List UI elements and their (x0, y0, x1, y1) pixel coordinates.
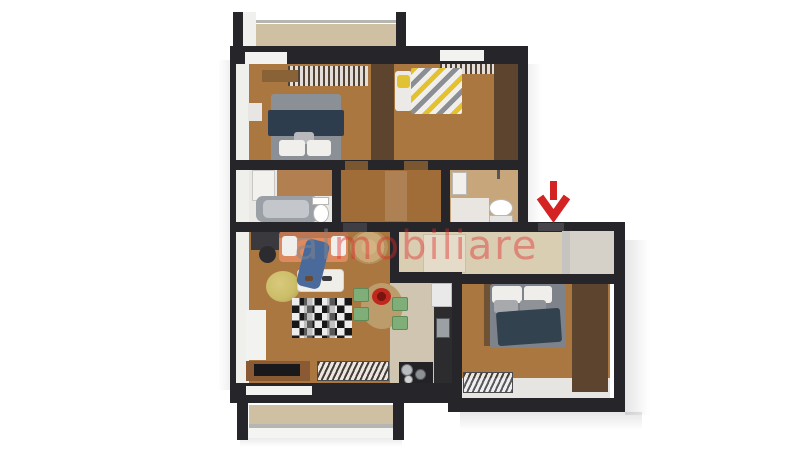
desk-chair (259, 246, 276, 263)
wall (230, 160, 528, 170)
wall (452, 274, 614, 284)
entrance-arrow-icon (534, 178, 570, 224)
balcony-bottom-outer (240, 428, 400, 438)
watermark-part-2: mobiliare (334, 223, 539, 269)
bedroom-3-blanket (496, 308, 562, 346)
divider-wardrobe (371, 50, 394, 160)
dining-chair (353, 307, 369, 321)
door-opening (345, 161, 368, 170)
balcony-top-railing (246, 20, 398, 23)
bedroom-2-bed-pillow-yellow (397, 75, 410, 88)
pot (415, 369, 426, 380)
slatted-shelf (246, 310, 266, 360)
dining-chair (353, 288, 369, 302)
door-opening (404, 161, 428, 170)
bedroom-3-radiator (463, 372, 513, 393)
window (440, 50, 484, 61)
living-room-radiator (317, 361, 389, 381)
shadow (218, 60, 230, 390)
wall (448, 398, 625, 412)
bedroom-3-wardrobe (572, 284, 608, 392)
balcony-bottom-floor (249, 405, 396, 424)
balcony-top-side-wall (243, 12, 256, 47)
checkered-rug (292, 298, 352, 338)
bathroom-2-sink (452, 172, 467, 195)
window (246, 386, 312, 395)
bedroom-1-corner-shelf (262, 70, 298, 82)
coffee-table-item (305, 276, 313, 281)
shadow (625, 240, 649, 415)
bathroom-2-floor-white (451, 198, 489, 222)
hallway-door-leaf (385, 171, 407, 221)
coffee-table-item (322, 276, 332, 281)
red-bowl (372, 288, 391, 305)
pillow (279, 140, 305, 156)
window (245, 52, 287, 64)
bathtub-inner (263, 200, 309, 218)
balcony-top-floor (246, 24, 398, 47)
fridge (431, 283, 452, 307)
kitchen-sink (436, 318, 450, 338)
entrance-door (538, 223, 564, 231)
balcony-post (233, 12, 243, 50)
pillow (307, 140, 331, 156)
wall (452, 272, 462, 403)
balcony-post (237, 400, 248, 440)
balcony-post (393, 402, 404, 440)
bathroom-1-wall-tiles (277, 170, 332, 196)
bedroom-2-wardrobe (494, 60, 518, 160)
wall-partition-light (562, 231, 570, 274)
bedroom-2-bed-chevron (411, 68, 462, 114)
floor-plan-image: aimobiliare (0, 0, 800, 450)
dining-chair (392, 297, 408, 311)
dining-chair (392, 316, 408, 330)
bedroom-1-nightstand (248, 103, 262, 121)
wall (518, 46, 528, 232)
tv (254, 364, 300, 376)
balcony-post (396, 12, 406, 48)
vestibule-floor (570, 231, 614, 274)
watermark: aimobiliare (294, 226, 538, 266)
watermark-part-1: ai (294, 223, 334, 269)
wall (614, 222, 625, 412)
bedroom-1-drapes (288, 66, 368, 86)
shadow (460, 412, 642, 430)
shadow (240, 438, 402, 447)
toilet-bowl (313, 204, 329, 223)
